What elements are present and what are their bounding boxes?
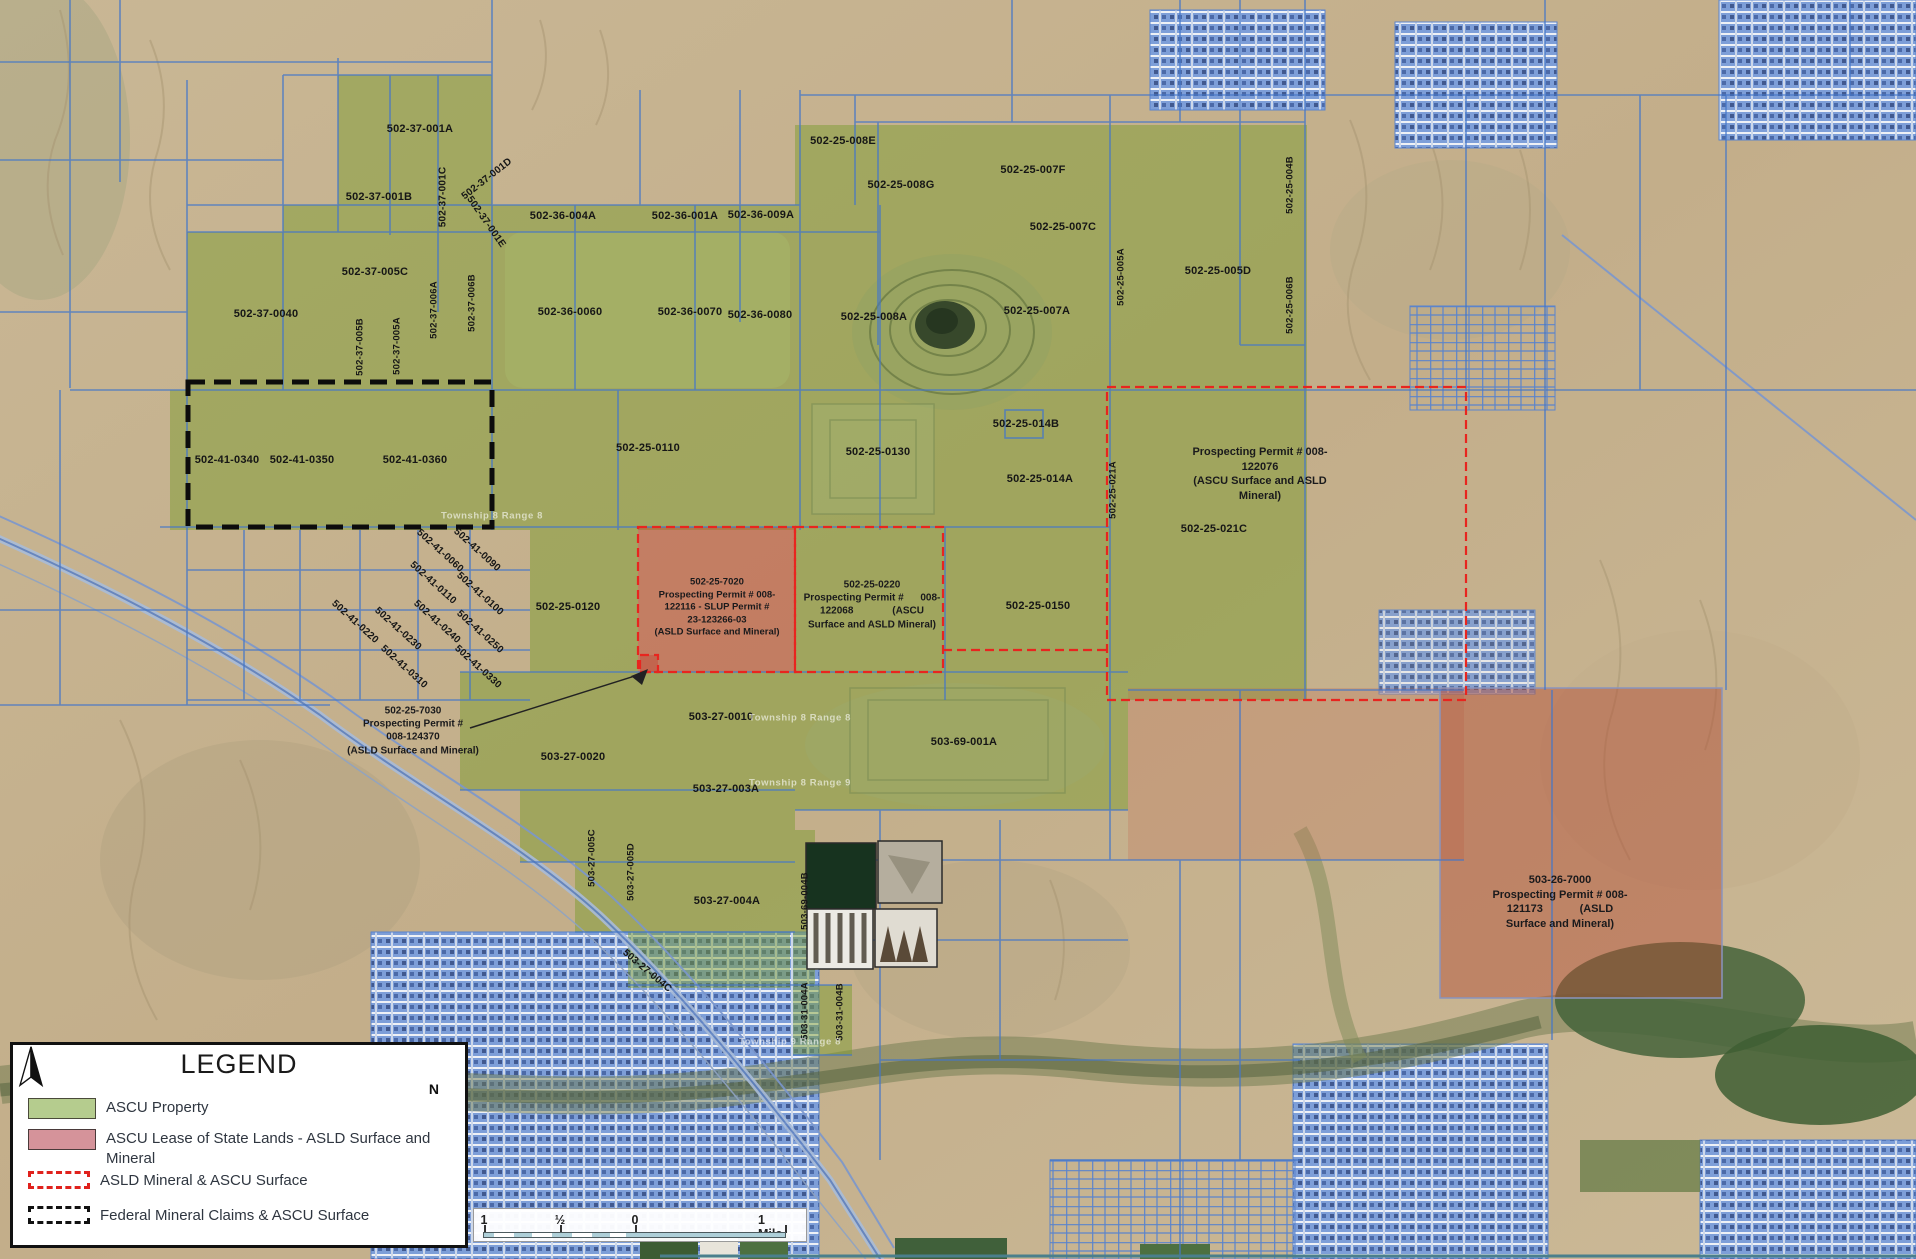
legend-item-asld-mineral: ASLD Mineral & ASCU Surface xyxy=(28,1171,445,1191)
legend-label: ASCU Property xyxy=(106,1098,451,1118)
legend-label: ASLD Mineral & ASCU Surface xyxy=(100,1171,445,1191)
north-arrow-icon xyxy=(13,1045,49,1089)
legend-swatch-ascu-lease xyxy=(28,1129,96,1150)
scale-bar-segment xyxy=(532,1233,552,1237)
legend-item-ascu-lease: ASCU Lease of State Lands - ASLD Surface… xyxy=(28,1129,451,1170)
legend-label: Federal Mineral Claims & ASCU Surface xyxy=(100,1206,445,1226)
scale-bar-segment xyxy=(610,1233,626,1237)
lease-pink-7000 xyxy=(1440,688,1722,998)
legend-item-federal-claims: Federal Mineral Claims & ASCU Surface xyxy=(28,1206,445,1226)
mine-pit xyxy=(852,254,1052,410)
north-label: N xyxy=(429,1081,439,1097)
lease-pink-7020 xyxy=(638,527,795,672)
scale-bar: 1 ½ 0 1 Mile xyxy=(473,1208,807,1242)
legend-panel: LEGEND N ASCU Property ASCU Lease of Sta… xyxy=(10,1042,468,1248)
scale-bar-segment xyxy=(494,1233,514,1237)
legend-item-ascu-property: ASCU Property xyxy=(28,1098,451,1119)
legend-title: LEGEND xyxy=(13,1049,465,1080)
legend-swatch-ascu-property xyxy=(28,1098,96,1119)
legend-swatch-asld-mineral xyxy=(28,1171,90,1189)
scale-bar-strip xyxy=(483,1232,786,1238)
legend-label: ASCU Lease of State Lands - ASLD Surface… xyxy=(106,1129,451,1170)
legend-swatch-federal-claims xyxy=(28,1206,90,1224)
map-canvas: 502-37-001A502-37-001B502-37-001C502-37-… xyxy=(0,0,1916,1259)
scale-bar-segment xyxy=(572,1233,592,1237)
lease-pink-mid xyxy=(1128,688,1464,860)
